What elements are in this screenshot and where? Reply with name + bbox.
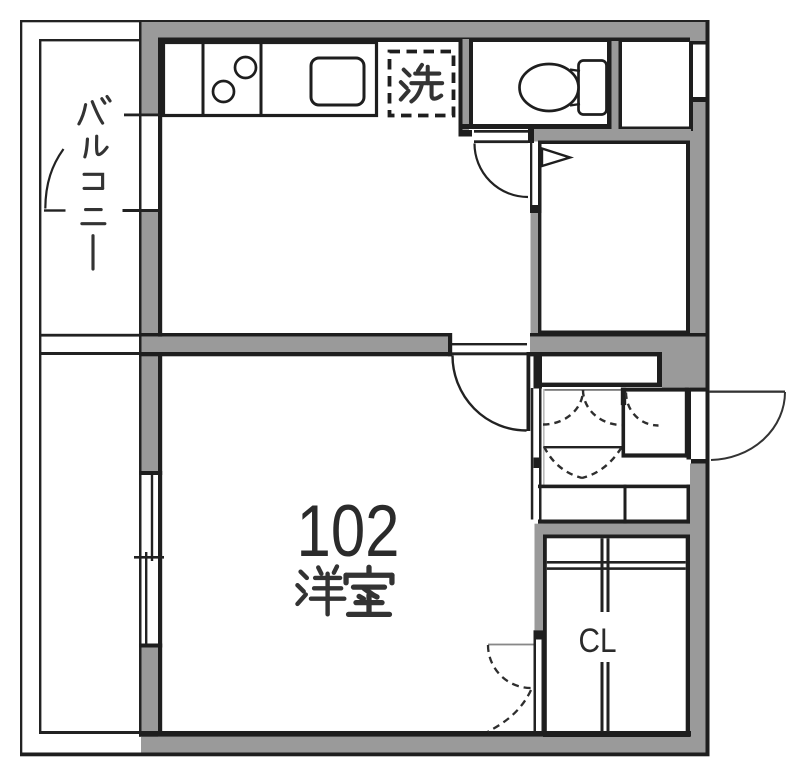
svg-text:CL: CL [579,622,617,660]
svg-text:102: 102 [297,491,400,572]
